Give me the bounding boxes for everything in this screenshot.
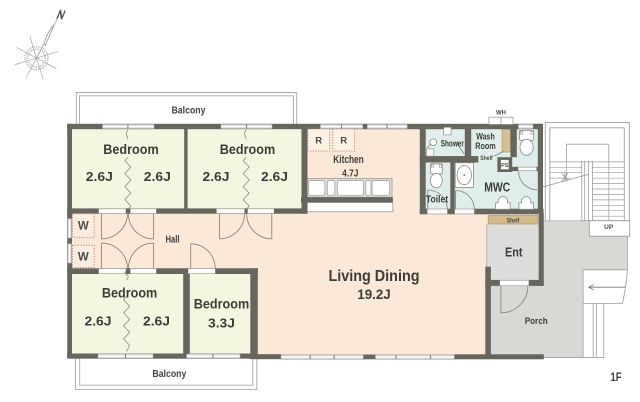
svg-text:2.6J: 2.6J bbox=[85, 314, 112, 328]
svg-text:MWC: MWC bbox=[484, 179, 510, 194]
svg-text:Hall: Hall bbox=[166, 235, 180, 246]
svg-text:Toilet: Toilet bbox=[426, 194, 449, 206]
svg-text:2.6J: 2.6J bbox=[203, 170, 230, 184]
svg-text:Ent: Ent bbox=[505, 245, 523, 260]
svg-text:Shelf: Shelf bbox=[480, 156, 493, 162]
svg-text:Kitchen: Kitchen bbox=[333, 154, 364, 166]
svg-text:Balcony: Balcony bbox=[152, 368, 186, 380]
svg-text:2.6J: 2.6J bbox=[144, 170, 171, 184]
svg-text:Living Dining: Living Dining bbox=[329, 268, 420, 285]
svg-text:Shower: Shower bbox=[441, 139, 464, 150]
svg-text:2.6J: 2.6J bbox=[86, 170, 113, 184]
svg-text:Porch: Porch bbox=[525, 316, 548, 327]
svg-text:Bedroom: Bedroom bbox=[194, 297, 249, 312]
svg-text:UP: UP bbox=[604, 224, 614, 231]
svg-text:19.2J: 19.2J bbox=[357, 286, 391, 302]
svg-text:R: R bbox=[340, 135, 347, 146]
svg-text:Bedroom: Bedroom bbox=[220, 142, 275, 157]
svg-text:Bedroom: Bedroom bbox=[103, 142, 158, 157]
svg-text:Shelf: Shelf bbox=[507, 218, 520, 224]
svg-text:Bedroom: Bedroom bbox=[102, 286, 157, 301]
svg-text:WH: WH bbox=[496, 111, 506, 117]
svg-text:Balcony: Balcony bbox=[172, 105, 206, 117]
svg-text:4.7J: 4.7J bbox=[342, 167, 358, 179]
svg-text:2.6J: 2.6J bbox=[261, 170, 288, 184]
svg-text:W: W bbox=[78, 251, 89, 263]
svg-text:1F: 1F bbox=[611, 370, 622, 384]
svg-text:2.6J: 2.6J bbox=[143, 314, 170, 328]
svg-text:R: R bbox=[315, 135, 322, 146]
svg-text:PS: PS bbox=[501, 163, 509, 169]
svg-text:3.3J: 3.3J bbox=[208, 316, 235, 330]
svg-text:Room: Room bbox=[475, 141, 496, 152]
svg-text:W: W bbox=[78, 221, 89, 233]
